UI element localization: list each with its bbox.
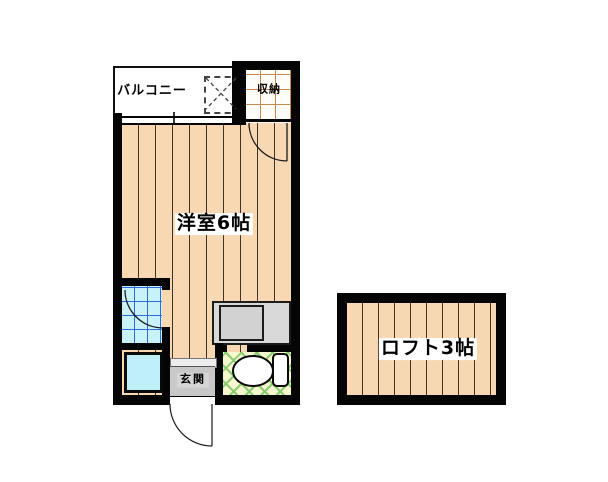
closet-label: 収納 — [255, 84, 283, 97]
entry-door-opening — [170, 395, 215, 407]
balcony-label: バルコニー — [115, 85, 189, 100]
wall-post-entrance-toilet — [215, 343, 223, 395]
entry-door-arc — [170, 404, 212, 446]
loft-label: ロフト3帖 — [379, 338, 477, 360]
counter-sink-inset — [219, 305, 264, 341]
entrance-label: 玄関 — [177, 373, 209, 388]
wall-post-balcony-closet — [232, 66, 246, 125]
bath-area — [122, 286, 162, 343]
wall-bath-sink-separator — [122, 343, 166, 350]
wall-bottom-left — [113, 395, 170, 405]
floorplan-canvas: バルコニー 収納 洋室6帖 玄関 ロフト3帖 — [0, 0, 608, 482]
window-symbol — [122, 116, 232, 125]
wall-right — [291, 61, 300, 405]
linework-overlay — [0, 0, 608, 482]
wall-left — [113, 113, 122, 405]
wall-bottom-right — [215, 395, 300, 405]
sink-fixture — [124, 352, 163, 393]
wall-bath-right-lower — [162, 327, 170, 395]
wall-toilet-top-stub — [223, 345, 227, 352]
main-room-label: 洋室6帖 — [175, 213, 253, 235]
toilet-area — [223, 352, 291, 395]
wall-bath-right-upper — [162, 278, 170, 290]
wall-toilet-top — [247, 345, 291, 352]
